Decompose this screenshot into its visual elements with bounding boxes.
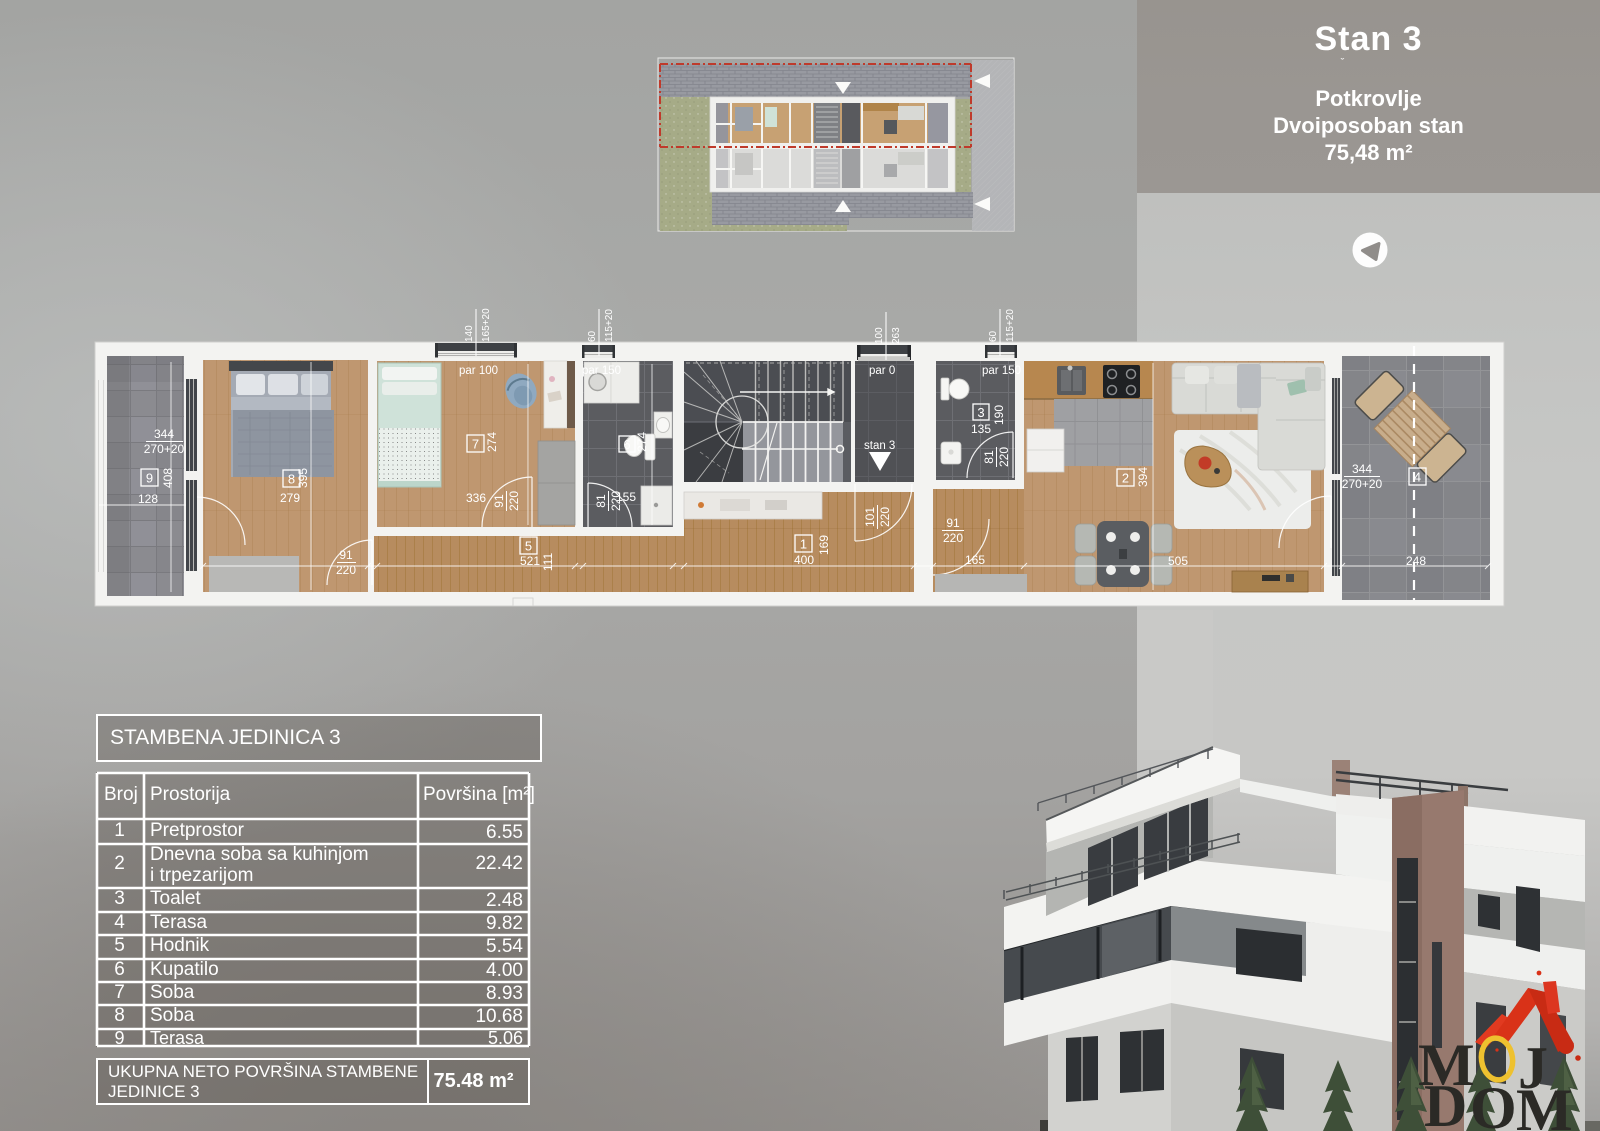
svg-text:400: 400 <box>794 553 814 567</box>
svg-text:M: M <box>1516 1077 1573 1131</box>
svg-text:111: 111 <box>541 553 555 572</box>
svg-text:270+20: 270+20 <box>1342 477 1383 491</box>
svg-text:270+20: 270+20 <box>144 442 185 456</box>
svg-text:220: 220 <box>609 491 623 511</box>
svg-text:91: 91 <box>946 516 960 530</box>
svg-text:4: 4 <box>1414 470 1421 485</box>
svg-text:par 150: par 150 <box>582 365 621 377</box>
svg-text:81: 81 <box>982 450 996 464</box>
svg-text:5: 5 <box>525 539 532 554</box>
svg-text:81: 81 <box>594 494 608 508</box>
svg-text:220: 220 <box>943 531 963 545</box>
svg-text:263: 263 <box>891 327 902 344</box>
svg-text:279: 279 <box>280 491 300 505</box>
svg-text:60: 60 <box>988 330 999 342</box>
svg-text:60: 60 <box>587 330 598 342</box>
svg-text:128: 128 <box>138 492 158 506</box>
svg-text:220: 220 <box>507 491 521 511</box>
svg-text:115+20: 115+20 <box>1005 309 1016 342</box>
svg-text:2: 2 <box>1122 471 1129 486</box>
svg-text:190: 190 <box>992 405 1006 425</box>
svg-text:395: 395 <box>296 468 310 488</box>
svg-text:par 100: par 100 <box>459 365 498 377</box>
svg-text:336: 336 <box>466 491 486 505</box>
svg-text:101: 101 <box>863 507 877 527</box>
svg-text:6: 6 <box>623 437 630 452</box>
svg-text:O: O <box>1470 1075 1517 1131</box>
svg-text:9: 9 <box>146 471 153 486</box>
svg-text:220: 220 <box>997 447 1011 467</box>
svg-text:100: 100 <box>874 327 885 344</box>
svg-text:par 150: par 150 <box>982 365 1021 377</box>
svg-text:344: 344 <box>1352 462 1372 476</box>
svg-text:par 0: par 0 <box>869 365 895 377</box>
svg-text:274: 274 <box>485 432 499 452</box>
svg-text:3: 3 <box>977 405 984 420</box>
svg-text:394: 394 <box>1136 467 1150 487</box>
svg-text:1: 1 <box>800 537 807 552</box>
svg-text:220: 220 <box>878 507 892 527</box>
svg-text:165: 165 <box>965 553 985 567</box>
svg-text:169: 169 <box>817 535 831 555</box>
svg-text:135: 135 <box>971 422 991 436</box>
svg-text:D: D <box>1424 1073 1467 1131</box>
svg-text:408: 408 <box>161 468 175 488</box>
svg-text:8: 8 <box>288 472 295 487</box>
svg-text:91: 91 <box>339 548 353 562</box>
svg-text:521: 521 <box>520 554 540 568</box>
svg-text:stan 3: stan 3 <box>864 440 895 452</box>
svg-text:248: 248 <box>1406 554 1426 568</box>
svg-text:91: 91 <box>492 494 506 508</box>
svg-text:505: 505 <box>1168 554 1188 568</box>
svg-text:220: 220 <box>336 563 356 577</box>
svg-text:140: 140 <box>464 325 475 342</box>
svg-text:344: 344 <box>154 427 174 441</box>
svg-text:165+20: 165+20 <box>481 308 492 342</box>
svg-text:115+20: 115+20 <box>604 309 615 342</box>
svg-text:7: 7 <box>472 437 479 452</box>
svg-text:274: 274 <box>635 432 649 452</box>
